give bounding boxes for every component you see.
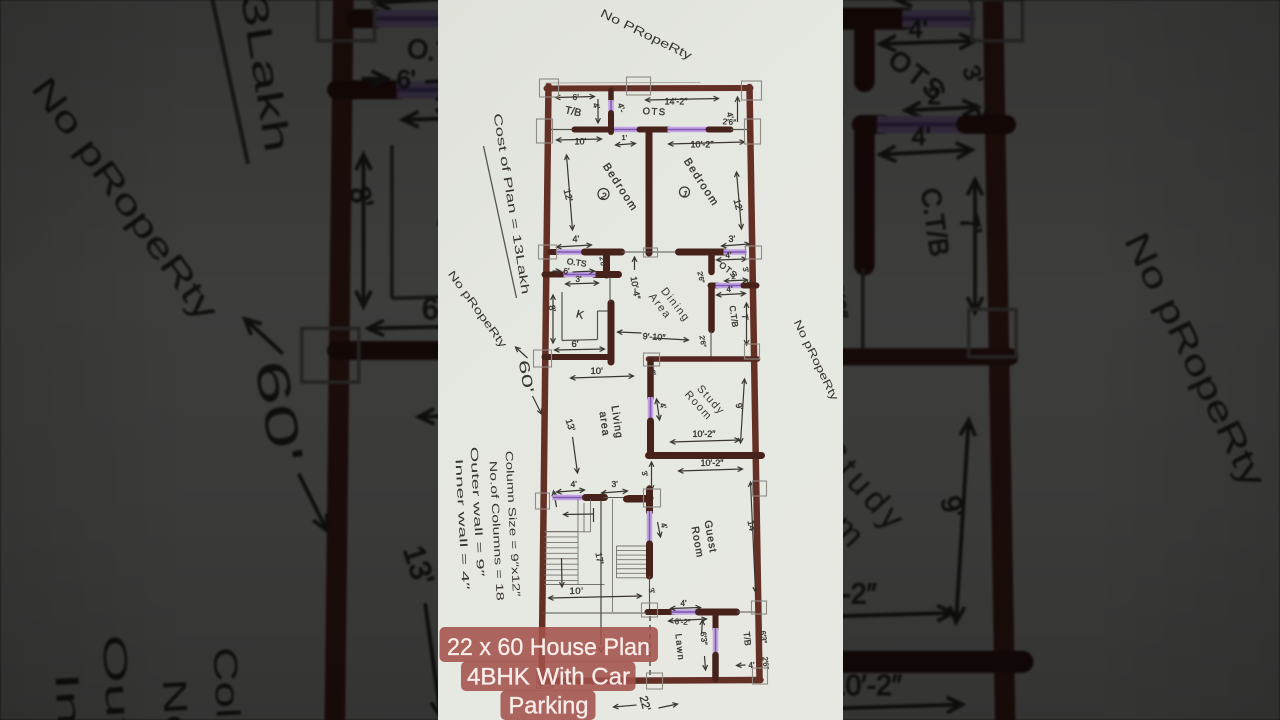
svg-text:6': 6' [571,339,578,350]
svg-text:4': 4' [570,479,577,489]
svg-text:4BHK With Car: 4BHK With Car [467,664,630,691]
svg-text:4': 4' [726,285,732,294]
svg-text:OTS: OTS [642,106,667,118]
svg-text:2': 2' [731,272,737,281]
svg-text:10′-2″: 10′-2″ [690,140,714,150]
svg-text:2′6″: 2′6″ [722,117,736,127]
svg-text:17': 17' [593,552,605,566]
svg-text:T/B: T/B [741,631,752,646]
svg-text:3': 3' [728,234,735,244]
svg-text:3': 3' [575,275,581,284]
svg-text:6': 6' [572,92,579,102]
svg-text:4': 4' [680,599,686,608]
svg-text:6′3″: 6′3″ [758,630,768,644]
svg-text:10': 10' [574,137,586,147]
svg-text:9′-10″: 9′-10″ [642,331,666,343]
svg-text:22 x 60 House Plan: 22 x 60 House Plan [447,634,650,661]
svg-text:14′-2″: 14′-2″ [664,97,688,107]
svg-text:3': 3' [611,479,618,489]
svg-text:10′-2″: 10′-2″ [692,429,716,439]
svg-text:Parking: Parking [508,693,588,720]
svg-text:10': 10' [590,366,603,377]
svg-text:1': 1' [621,133,627,142]
svg-text:10': 10' [569,586,583,597]
svg-text:4': 4' [748,661,754,670]
svg-text:10′-2″: 10′-2″ [700,458,724,468]
svg-text:4': 4' [572,234,579,244]
svg-text:6′3″: 6′3″ [698,631,708,645]
svg-text:4': 4' [725,251,731,260]
svg-text:6′-2″: 6′-2″ [674,617,691,627]
svg-text:6': 6' [563,267,569,276]
